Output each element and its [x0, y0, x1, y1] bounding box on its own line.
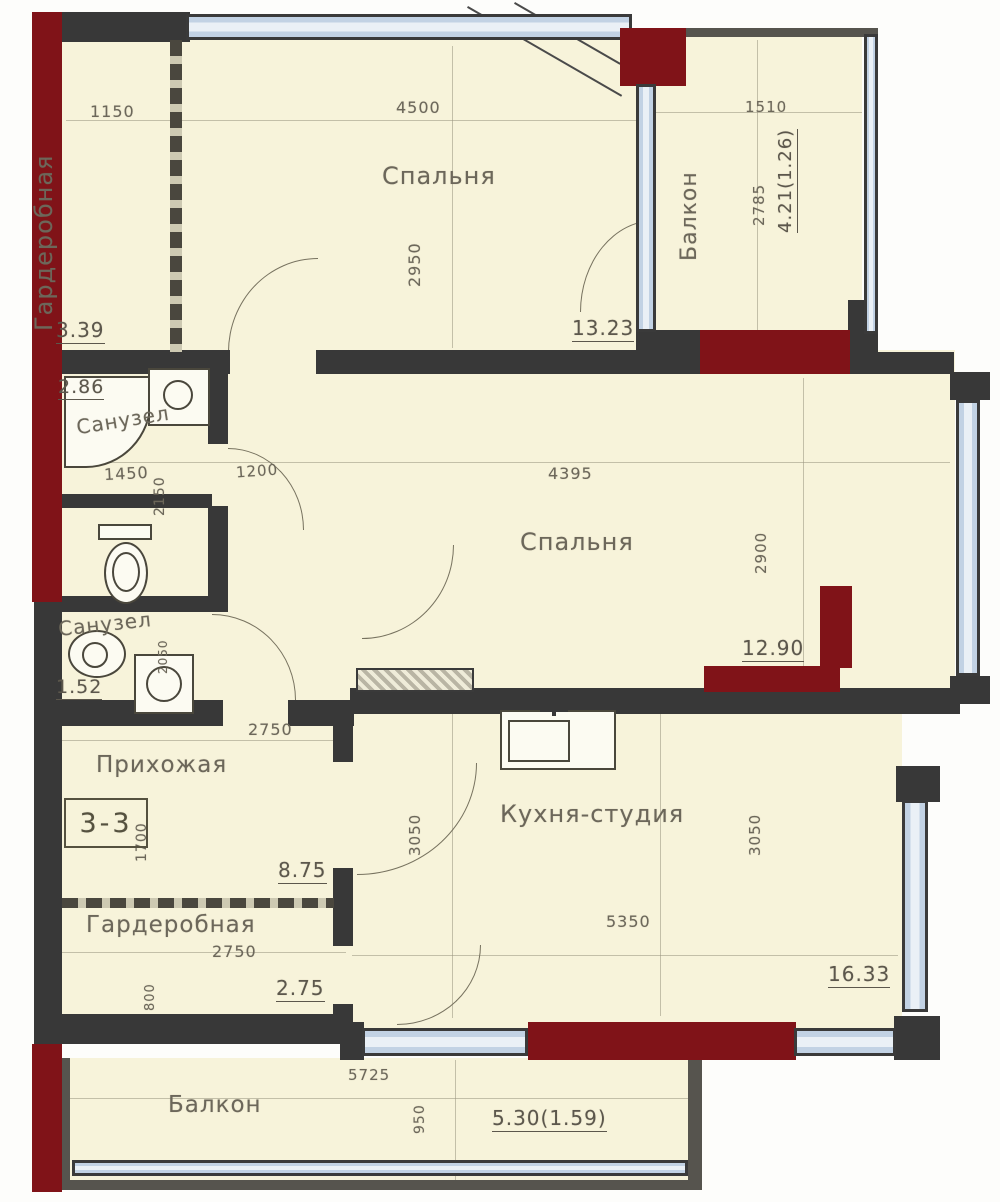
toilet-bowl-inner — [112, 552, 140, 592]
floor-plan: Гардеробная Спальня Балкон Санузел Сануз… — [0, 0, 1000, 1202]
dim-4500: 4500 — [396, 98, 441, 117]
balcony2-left-wall — [62, 1058, 70, 1188]
fill-bottom-band — [62, 700, 902, 1032]
red-wall-under-balcony — [700, 330, 850, 374]
dim-5350: 5350 — [606, 912, 651, 931]
wall-wardrobe2-bottom — [55, 1014, 347, 1044]
unit-number-label: 3-3 — [79, 808, 132, 839]
red-wall-top-pier — [620, 28, 686, 86]
red-wall-bottom — [528, 1022, 796, 1060]
counter-hatched — [356, 668, 474, 692]
wall-right-corner-top — [950, 372, 990, 400]
dim-800: 800 — [143, 983, 158, 1011]
dim-line — [62, 740, 352, 741]
dim-3050-left: 3050 — [406, 814, 424, 856]
wall-kitchen-left-b — [333, 868, 353, 946]
dim-5725: 5725 — [348, 1066, 390, 1084]
area-hall: 8.75 — [278, 858, 327, 884]
partition-wardrobe2 — [62, 898, 334, 908]
dim-950: 950 — [412, 1104, 428, 1134]
area-kitchen: 16.33 — [828, 962, 890, 988]
area-bath2: 1.52 — [56, 676, 102, 700]
room-label-wardrobe2: Гардеробная — [86, 912, 256, 938]
sink-bath2-bowl — [82, 642, 108, 668]
kitchen-sink-basin — [508, 720, 570, 762]
balcony2-right-wall — [688, 1058, 702, 1190]
dim-line — [62, 952, 346, 953]
wall-left-lower — [34, 600, 62, 1046]
wall-under-balcony-left — [636, 330, 702, 374]
room-label-bedroom2: Спальня — [520, 528, 634, 556]
balcony2-rail-window — [72, 1160, 688, 1176]
unit-number-box: 3-3 — [64, 798, 148, 848]
window-top — [186, 14, 632, 40]
dim-2785: 2785 — [750, 184, 768, 226]
dim-line — [66, 120, 636, 121]
partition-wardrobe1 — [170, 40, 182, 352]
area-wardrobe2: 2.75 — [276, 976, 325, 1002]
dim-1450: 1450 — [104, 463, 150, 484]
balcony2-bottom-wall — [62, 1180, 702, 1190]
toilet-tank — [98, 524, 152, 540]
area-wardrobe1: 3.39 — [56, 318, 105, 344]
dim-1200: 1200 — [235, 461, 278, 482]
window-bottom-left — [362, 1028, 528, 1056]
wall-bedroom1-bottom-b — [316, 350, 642, 374]
dim-2950: 2950 — [405, 242, 424, 287]
balcony-right-window — [864, 34, 878, 334]
red-wall-kitchen-top — [704, 666, 840, 692]
bedroom2-window — [956, 400, 980, 676]
dim-2750-hall: 2750 — [248, 720, 293, 739]
room-label-balcony2: Балкон — [168, 1092, 262, 1118]
red-pier-right — [820, 586, 852, 668]
window-bottom-right — [794, 1028, 896, 1056]
dim-2050: 2050 — [156, 639, 170, 674]
dim-line — [660, 706, 661, 1016]
dim-line — [70, 1098, 688, 1099]
room-label-hall: Прихожая — [96, 752, 227, 778]
room-label-bedroom1: Спальня — [382, 162, 496, 190]
dim-2750-wardrobe2: 2750 — [212, 942, 257, 961]
area-balcony2: 5.30(1.59) — [492, 1106, 607, 1132]
wall-kitchen-right-top — [896, 766, 940, 802]
fill-top-left-block — [62, 40, 640, 354]
red-wall-left-bottom — [32, 1044, 62, 1192]
bedroom1-balcony-window — [636, 84, 656, 332]
wall-kitchen-left-a — [333, 712, 353, 762]
area-bedroom2: 12.90 — [742, 636, 804, 662]
dim-line — [66, 462, 950, 463]
dim-2150: 2150 — [152, 476, 168, 516]
wall-bottom-a — [340, 1022, 364, 1060]
kitchen-right-window — [902, 800, 928, 1012]
dim-3050-right: 3050 — [746, 814, 764, 856]
dim-2900: 2900 — [752, 532, 770, 574]
wall-bottom-corner — [894, 1016, 940, 1060]
dim-line — [452, 46, 453, 348]
wall-bath-h1 — [62, 494, 212, 508]
wall-bath-col-a — [208, 374, 228, 444]
area-bedroom1: 13.23 — [572, 316, 634, 342]
dim-1510: 1510 — [745, 98, 787, 116]
room-label-balcony-top: Балкон — [677, 171, 702, 261]
room-label-kitchen: Кухня-студия — [500, 800, 684, 828]
dim-4395: 4395 — [548, 464, 593, 483]
kitchen-sink-tap-bar — [540, 708, 568, 712]
wall-bedroom2-top — [848, 352, 954, 374]
area-balcony-top: 4.21(1.26) — [775, 129, 798, 233]
dim-1150: 1150 — [90, 102, 135, 121]
room-label-wardrobe1: Гардеробная — [30, 155, 58, 332]
area-bath1: 2.86 — [58, 376, 104, 400]
